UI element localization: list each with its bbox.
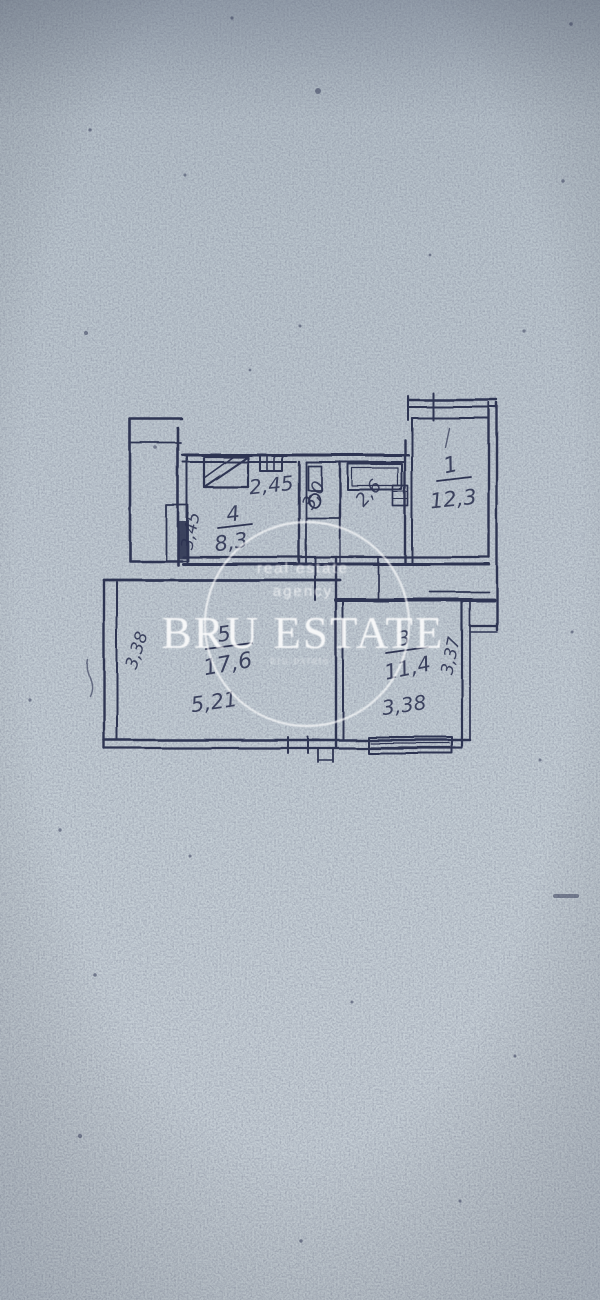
floor-plan-photo: 2,45 4 8,3 3,45 3,0 2,6 1 12,3 5 17,6 5,… (0, 0, 600, 1300)
watermark-subtext: bru.estate (270, 656, 329, 667)
watermark-brand: BRU ESTATE (162, 608, 445, 658)
watermark-tagline-1: real estate (257, 560, 349, 577)
watermark-tagline-2: agency (273, 583, 333, 600)
room-1-area: 12,3 (429, 485, 478, 514)
kitchen-area: 8,3 (213, 528, 249, 556)
dimension-kitchen-width: 2,45 (248, 471, 295, 500)
floor-plan-canvas: 2,45 4 8,3 3,45 3,0 2,6 1 12,3 5 17,6 5,… (0, 0, 600, 1300)
